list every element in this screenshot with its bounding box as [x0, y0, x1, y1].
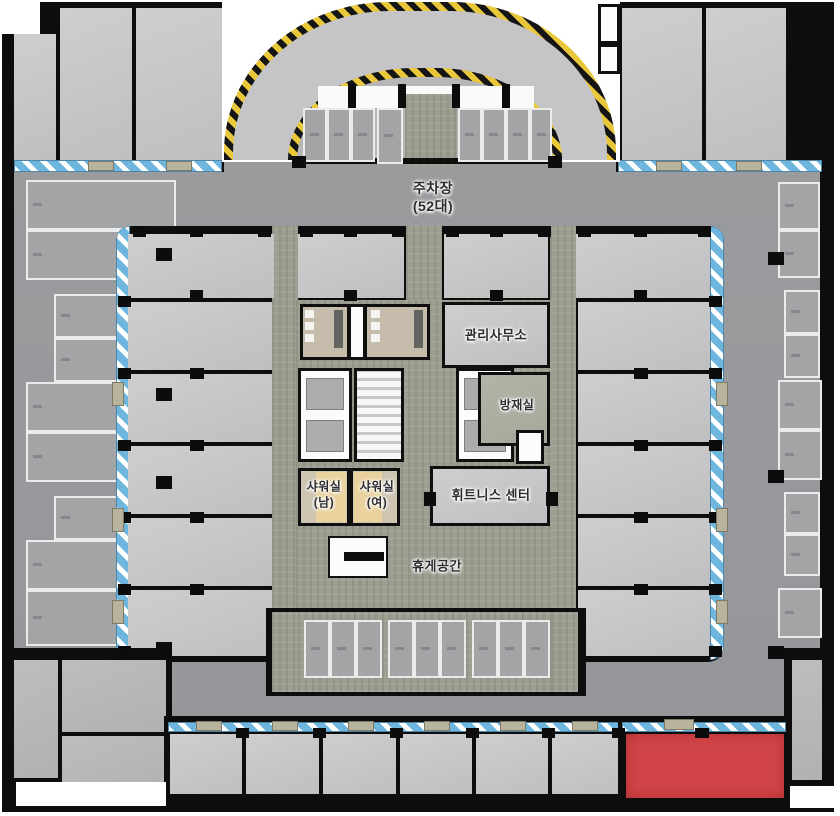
stairwell-center [354, 368, 404, 462]
site-opening-n [598, 0, 620, 4]
highlighted-unit[interactable] [626, 734, 784, 798]
corridor-west-stub [272, 612, 298, 692]
rest-area-label: 휴게공간 [412, 559, 462, 576]
utility-shaft [516, 430, 544, 464]
shower-men-label: 샤워실 (남) [307, 479, 342, 510]
site-opening-nw [0, 0, 40, 34]
floor-plan: 주차장 (52대) 관리사무소 방재실 샤워실 (남) 샤워실 (여) 휘트니스… [0, 0, 840, 816]
parking-bay [298, 612, 554, 692]
corridor-east-stub [552, 612, 578, 692]
glass-facade-bottom [168, 722, 620, 732]
management-office-label: 관리사무소 [465, 328, 527, 345]
glass-facade-highlight [622, 722, 786, 732]
shower-women-label: 샤워실 (여) [360, 479, 395, 510]
fitness-center-label: 휘트니스 센터 [452, 488, 531, 505]
site-opening-se [790, 786, 834, 808]
restroom-men [364, 304, 430, 360]
elevator-shaft-west [298, 368, 352, 462]
glass-facade-left [116, 226, 130, 660]
restroom-women [300, 304, 350, 360]
disaster-prevention-label: 방재실 [500, 398, 535, 414]
rest-area-stair-rail [344, 552, 384, 561]
glass-facade-right [710, 226, 724, 660]
site-opening-sw [16, 782, 166, 806]
corridor-center [406, 226, 442, 304]
parking-label: 주차장 (52대) [413, 179, 453, 215]
